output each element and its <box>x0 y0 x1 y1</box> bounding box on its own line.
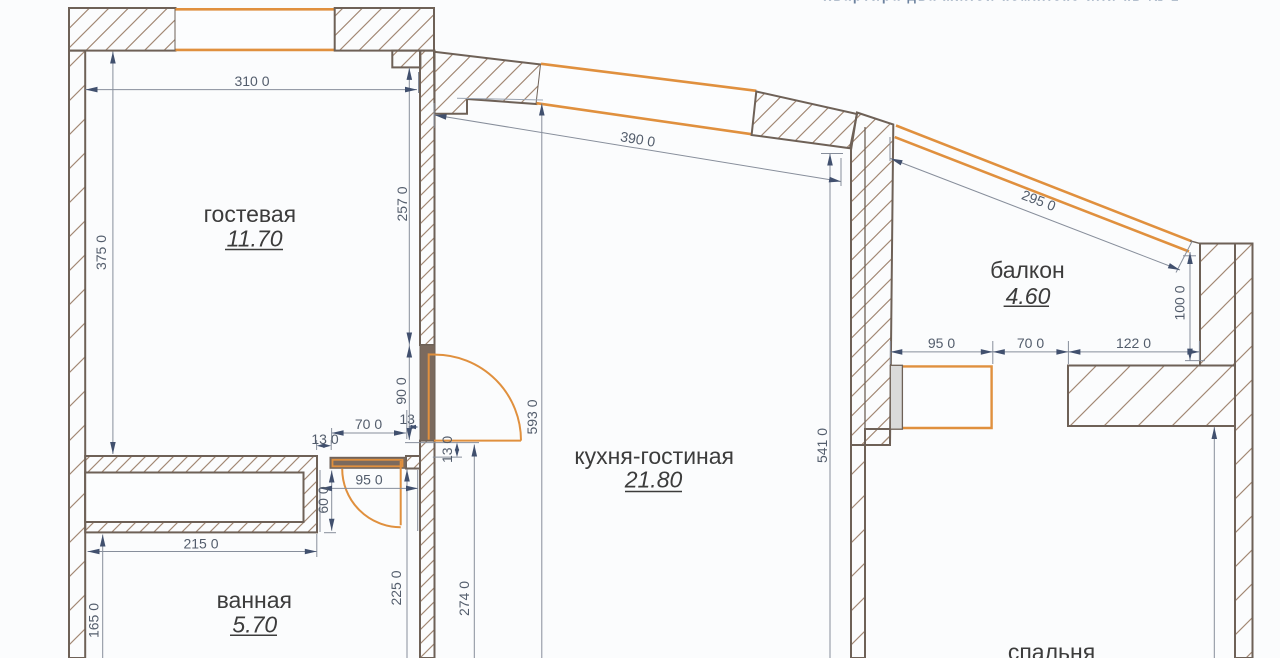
svg-text:гостевая: гостевая <box>204 201 296 227</box>
svg-text:70 0: 70 0 <box>1017 335 1044 351</box>
svg-text:90 0: 90 0 <box>393 377 409 404</box>
svg-text:593 0: 593 0 <box>524 399 540 434</box>
svg-text:165 0: 165 0 <box>86 603 102 638</box>
svg-text:257 0: 257 0 <box>394 186 410 221</box>
svg-text:310 0: 310 0 <box>234 73 269 89</box>
svg-text:5.70: 5.70 <box>232 612 277 638</box>
svg-text:122 0: 122 0 <box>1116 335 1151 351</box>
svg-text:11.70: 11.70 <box>227 226 283 252</box>
svg-text:215 0: 215 0 <box>183 536 218 552</box>
svg-text:100 0: 100 0 <box>1172 285 1188 320</box>
svg-text:375 0: 375 0 <box>93 235 109 270</box>
svg-text:60 0: 60 0 <box>315 486 331 513</box>
svg-text:13 0: 13 0 <box>439 436 455 463</box>
svg-text:4.60: 4.60 <box>1006 283 1051 309</box>
svg-text:274 0: 274 0 <box>456 581 472 616</box>
svg-text:21.80: 21.80 <box>624 467 683 493</box>
svg-text:70 0: 70 0 <box>355 416 382 432</box>
svg-text:13 0: 13 0 <box>311 431 338 447</box>
svg-text:спальня: спальня <box>1008 639 1095 658</box>
svg-text:Квартира два жилой комплекс: Квартира два жилой комплекс или кв № 1 <box>823 0 1180 4</box>
svg-text:95 0: 95 0 <box>928 335 955 351</box>
svg-text:балкон: балкон <box>990 257 1065 283</box>
svg-text:541 0: 541 0 <box>814 428 830 463</box>
svg-text:кухня-гостиная: кухня-гостиная <box>574 443 734 469</box>
svg-text:ванная: ванная <box>217 587 292 613</box>
svg-text:95 0: 95 0 <box>355 472 382 488</box>
svg-text:225 0: 225 0 <box>388 570 404 605</box>
